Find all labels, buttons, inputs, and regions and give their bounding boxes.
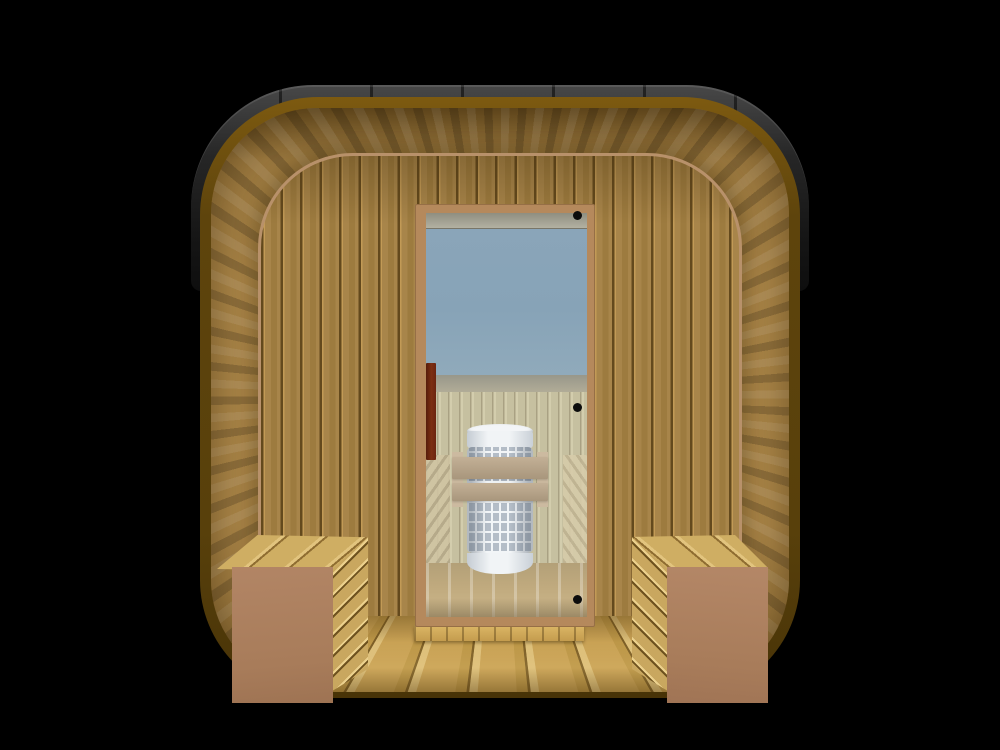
sauna-heater: [467, 428, 533, 574]
interior-bench-left: [426, 455, 450, 563]
porch-bench-right-front: [667, 567, 768, 703]
glass-door: [415, 204, 595, 627]
glass-reflection: [426, 229, 587, 375]
door-threshold: [414, 625, 584, 641]
door-hinge: [573, 403, 582, 412]
sauna-interior: [426, 392, 587, 617]
heater-top-band: [467, 431, 533, 448]
guard-rail-lower: [452, 483, 548, 501]
door-hinge: [573, 211, 582, 220]
interior-ceiling-strip: [426, 213, 587, 229]
door-hinge: [573, 595, 582, 604]
door-glass: [426, 213, 587, 617]
interior-wall-top-strip: [426, 375, 587, 392]
guard-rail-upper: [452, 457, 548, 479]
interior-bench-right: [563, 455, 587, 563]
heater-base: [467, 553, 533, 574]
door-handle: [426, 363, 436, 460]
sauna-3d-render: [0, 0, 1000, 750]
porch-bench-left-front: [232, 567, 333, 703]
